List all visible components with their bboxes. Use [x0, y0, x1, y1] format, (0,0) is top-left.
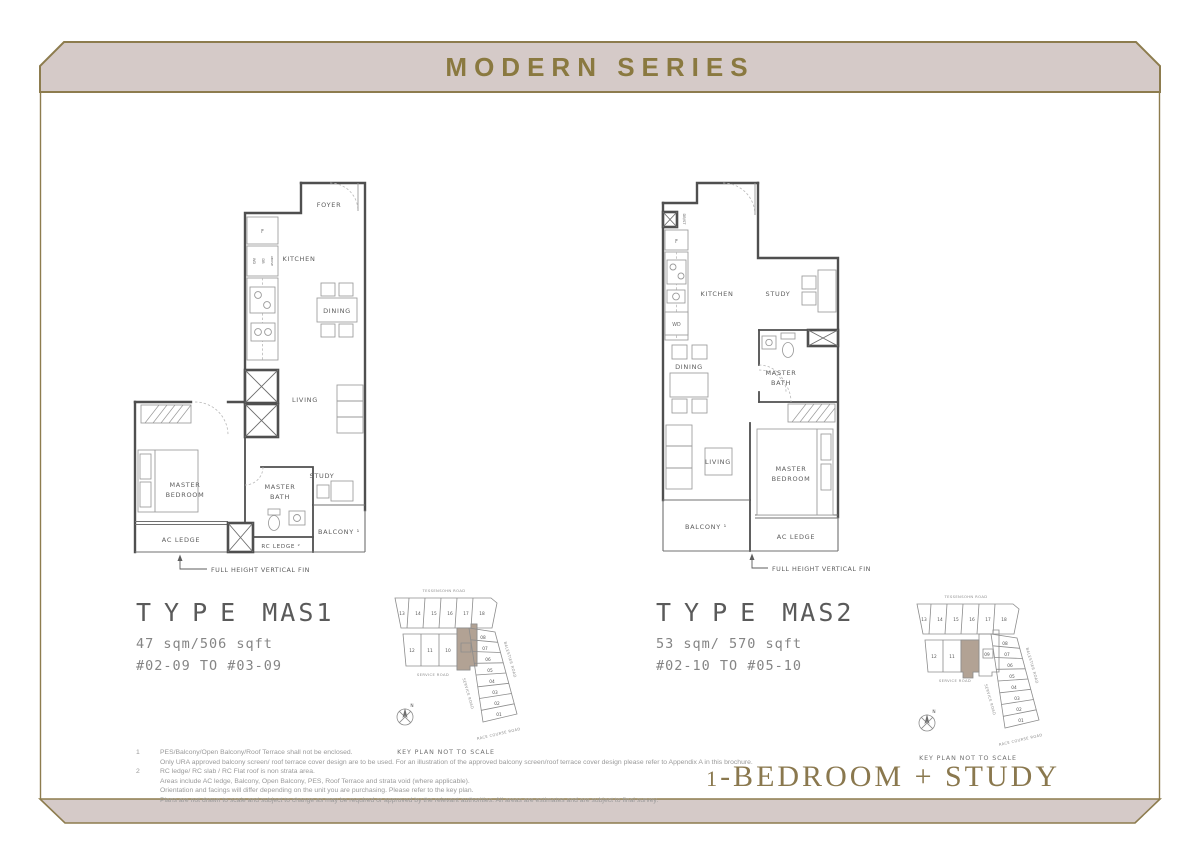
- road-tessensohn: TESSENSOHN ROAD: [421, 589, 465, 593]
- mas2-fin-label: FULL HEIGHT VERTICAL FIN: [772, 565, 871, 573]
- svg-text:18: 18: [1001, 617, 1007, 623]
- mas2-wd-label: WD: [672, 322, 681, 328]
- footnote-number: 1: [136, 748, 160, 758]
- type-word: TYPE: [136, 598, 248, 627]
- svg-text:14: 14: [415, 611, 421, 617]
- mas1-wd-label: WD: [252, 258, 256, 265]
- svg-text:08: 08: [1002, 641, 1008, 647]
- type-block-mas2: TYPEMAS2 53 sqm/ 570 sqft #02-10 TO #05-…: [656, 598, 854, 677]
- svg-text:13: 13: [399, 611, 405, 617]
- svg-text:05: 05: [1009, 674, 1015, 680]
- type-code: MAS1: [262, 598, 334, 627]
- svg-text:18: 18: [479, 611, 485, 617]
- north-label: N: [410, 703, 413, 709]
- svg-text:03: 03: [1014, 696, 1020, 702]
- area-text: 47 sqm/506 sqft: [136, 633, 334, 655]
- mas2-fin-annotation: FULL HEIGHT VERTICAL FIN: [750, 554, 871, 574]
- mas2-kitchen-label: KITCHEN: [700, 290, 733, 298]
- mas2-living-label: LIVING: [705, 458, 731, 466]
- svg-text:11: 11: [949, 654, 955, 660]
- svg-text:03: 03: [492, 690, 498, 696]
- mas1-balcony-label: BALCONY ¹: [318, 528, 360, 536]
- keyplan1-unit-numbers: 13 14 15 16 17 18 12 11 10 08 07 06 05 0…: [399, 611, 502, 718]
- type-area-units-mas2: 53 sqm/ 570 sqft #02-10 TO #05-10: [656, 633, 854, 677]
- mas2-master-bedroom-label-1: MASTER: [776, 465, 807, 473]
- mas2-dining-set: [670, 345, 708, 413]
- road-service-diag: SERVICE ROAD: [984, 684, 997, 716]
- road-tessensohn: TESSENSOHN ROAD: [943, 595, 987, 599]
- mas1-study-label: STUDY: [310, 472, 335, 480]
- north-label: N: [932, 709, 935, 715]
- svg-text:07: 07: [1004, 652, 1010, 658]
- category-title: 1-BEDROOM + STUDY: [706, 760, 1060, 794]
- mas1-master-bedroom-label-1: MASTER: [170, 481, 201, 489]
- svg-text:11: 11: [427, 648, 433, 654]
- mas1-above-label: ABOVE: [270, 256, 274, 266]
- svg-text:10: 10: [445, 648, 451, 654]
- footnote-number: 2: [136, 767, 160, 777]
- mas1-dining-label: DINING: [323, 307, 351, 315]
- type-block-mas1: TYPEMAS1 47 sqm/506 sqft #02-09 TO #03-0…: [136, 598, 334, 677]
- svg-text:01: 01: [496, 712, 502, 718]
- road-race-course: RACE COURSE ROAD: [999, 733, 1043, 747]
- svg-text:06: 06: [1007, 663, 1013, 669]
- svg-text:06: 06: [485, 657, 491, 663]
- north-compass: N: [397, 703, 414, 725]
- mas2-dbst-label: DB/ST: [682, 214, 686, 226]
- mas1-bath-fixtures: [268, 509, 305, 531]
- mas1-fridge-label: F: [261, 229, 264, 235]
- svg-text:01: 01: [1018, 718, 1024, 724]
- series-title: MODERN SERIES: [0, 44, 1200, 90]
- road-service: SERVICE ROAD: [939, 679, 971, 683]
- svg-text:02: 02: [1016, 707, 1022, 713]
- keyplan-mas2: TESSENSOHN ROAD 13 14 15 16 17 18 12 11 …: [903, 588, 1068, 766]
- mas1-master-bath-label-2: BATH: [270, 493, 290, 501]
- mas2-study-label: STUDY: [766, 290, 791, 298]
- svg-text:14: 14: [937, 617, 943, 623]
- floorplan-mas2: KITCHEN STUDY DINING LIVING MASTER BATH …: [650, 170, 880, 580]
- svg-text:07: 07: [482, 646, 488, 652]
- svg-text:02: 02: [494, 701, 500, 707]
- mas2-master-bedroom-label-2: BEDROOM: [772, 475, 811, 483]
- mas1-wardrobe: [141, 405, 191, 423]
- svg-text:04: 04: [489, 679, 495, 685]
- svg-text:12: 12: [931, 654, 937, 660]
- category-number: 1: [706, 766, 720, 791]
- mas2-wardrobe: [788, 404, 835, 422]
- category-rest: -BEDROOM + STUDY: [720, 760, 1060, 793]
- mas1-ac-ledge-label: AC LEDGE: [162, 536, 200, 544]
- mas1-db-label: DB: [261, 258, 265, 264]
- brochure-page: MODERN SERIES: [0, 0, 1200, 857]
- mas1-study-desk: [317, 481, 353, 501]
- type-code: MAS2: [782, 598, 854, 627]
- area-text: 53 sqm/ 570 sqft: [656, 633, 854, 655]
- svg-text:16: 16: [447, 611, 453, 617]
- svg-text:08: 08: [480, 635, 486, 641]
- svg-text:17: 17: [463, 611, 469, 617]
- mas1-fin-annotation: FULL HEIGHT VERTICAL FIN: [178, 555, 310, 575]
- mas1-sofa: [337, 385, 363, 433]
- type-title-mas1: TYPEMAS1: [136, 598, 334, 627]
- mas2-living-furniture: [666, 425, 732, 489]
- mas1-living-label: LIVING: [292, 396, 318, 404]
- mas2-dining-label: DINING: [675, 363, 703, 371]
- svg-text:12: 12: [409, 648, 415, 654]
- mas1-kitchen-fixtures: [247, 217, 278, 360]
- svg-text:13: 13: [921, 617, 927, 623]
- units-text: #02-09 TO #03-09: [136, 655, 334, 677]
- mas2-bath-fixtures: [762, 333, 795, 358]
- road-service-diag: SERVICE ROAD: [462, 678, 475, 710]
- svg-text:04: 04: [1011, 685, 1017, 691]
- mas1-foyer-label: FOYER: [317, 201, 342, 209]
- mas1-kitchen-label: KITCHEN: [282, 255, 315, 263]
- svg-text:05: 05: [487, 668, 493, 674]
- type-area-units-mas1: 47 sqm/506 sqft #02-09 TO #03-09: [136, 633, 334, 677]
- footnote-line: PES/Balcony/Open Balcony/Roof Terrace sh…: [160, 748, 1076, 758]
- mas2-balcony-label: BALCONY ¹: [685, 523, 727, 531]
- svg-text:16: 16: [969, 617, 975, 623]
- mas1-master-bath-label-1: MASTER: [265, 483, 296, 491]
- mas1-rc-ledge-label: RC LEDGE ²: [261, 543, 300, 550]
- mas2-study-furniture: [802, 270, 836, 312]
- floorplan-mas1: FOYER KITCHEN DINING LIVING MASTER BEDRO…: [133, 165, 413, 585]
- mas2-fridge-label: F: [675, 239, 678, 245]
- type-title-mas2: TYPEMAS2: [656, 598, 854, 627]
- footnote-line: Plans are not drawn to scale and subject…: [160, 796, 1076, 806]
- mas1-master-bedroom-label-2: BEDROOM: [166, 491, 205, 499]
- mas2-master-bath-label-2: BATH: [771, 379, 791, 387]
- highlighted-unit: [961, 640, 979, 678]
- svg-text:15: 15: [953, 617, 959, 623]
- mas2-master-bath-label-1: MASTER: [766, 369, 797, 377]
- type-word: TYPE: [656, 598, 768, 627]
- svg-text:09: 09: [984, 652, 990, 658]
- north-compass: N: [919, 709, 936, 731]
- units-text: #02-10 TO #05-10: [656, 655, 854, 677]
- mas1-fin-label: FULL HEIGHT VERTICAL FIN: [211, 566, 310, 574]
- mas2-ac-ledge-label: AC LEDGE: [777, 533, 815, 541]
- keyplan-mas1: TESSENSOHN ROAD 13 14 15 16 17 18 12 11 …: [381, 582, 546, 760]
- road-service: SERVICE ROAD: [417, 673, 449, 677]
- svg-text:17: 17: [985, 617, 991, 623]
- road-race-course: RACE COURSE ROAD: [477, 727, 521, 741]
- svg-text:15: 15: [431, 611, 437, 617]
